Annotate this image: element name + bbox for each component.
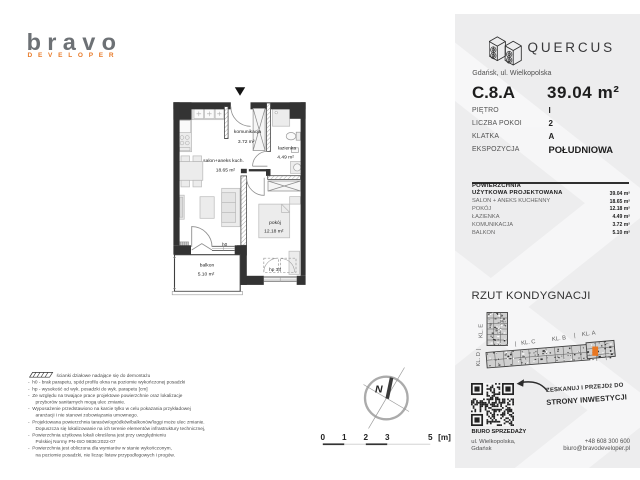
svg-text:| KL. A: | KL. A: [574, 330, 597, 339]
svg-text:KL. E: KL. E: [479, 324, 485, 338]
svg-text:- h0 - brak parapetu, spód pr: - h0 - brak parapetu, spód profilu okna …: [28, 380, 185, 386]
svg-text:- Projektowana powierzchnia t: - Projektowana powierzchnia tarasów/ogró…: [28, 419, 205, 425]
svg-text:5.10 m²: 5.10 m²: [198, 272, 215, 278]
svg-text:3.72 m²: 3.72 m²: [238, 139, 255, 145]
svg-text:- Wyposażenie przedstawiono n: - Wyposażenie przedstawiono na karcie ty…: [28, 406, 191, 412]
svg-text:2: 2: [364, 433, 369, 442]
svg-text:przyborów sanitarnych mogą ule: przyborów sanitarnych mogą ulec zmianie.: [36, 400, 126, 406]
svg-text:- hp - wysokość od wyk. posad: - hp - wysokość od wyk. posadzki do wyk.…: [28, 386, 148, 392]
svg-text:na poziomie posadzki, nie licz: na poziomie posadzki, nie licząc listew …: [36, 452, 175, 458]
svg-text:12.18 m²: 12.18 m²: [264, 228, 284, 234]
svg-text:N: N: [375, 384, 383, 396]
svg-text:0: 0: [321, 433, 326, 442]
svg-text:balkon: balkon: [200, 262, 215, 268]
svg-text:| KL. C: | KL. C: [515, 339, 536, 347]
svg-text:hp 33: hp 33: [269, 267, 281, 272]
svg-text:komunikacja: komunikacja: [234, 129, 261, 135]
svg-text:[m]: [m]: [438, 433, 451, 442]
svg-text:KL. B: KL. B: [552, 335, 567, 343]
svg-text:3: 3: [385, 433, 390, 442]
svg-text:pokój: pokój: [269, 220, 281, 226]
svg-text:Dopuszcza się lokalizowanie na: Dopuszcza się lokalizowanie na ich teren…: [36, 426, 206, 432]
svg-text:1: 1: [342, 433, 347, 442]
svg-text:aranżacji i nie stanowi zobowi: aranżacji i nie stanowi zobowiązania umo…: [36, 413, 138, 419]
svg-text:- Powierzchnia użytkowa lokal: - Powierzchnia użytkowa lokali określona…: [28, 433, 166, 439]
svg-text:h0: h0: [222, 242, 228, 247]
svg-text:5: 5: [428, 433, 433, 442]
svg-text:salon+aneks kuch.: salon+aneks kuch.: [203, 158, 244, 164]
svg-text:18.65 m²: 18.65 m²: [216, 167, 236, 173]
svg-text:Polskiej Normy PN-ISO 9836:202: Polskiej Normy PN-ISO 9836:2022-07: [36, 439, 116, 445]
svg-text:ścianki działowe nadające się: ścianki działowe nadające się do demonta…: [57, 373, 151, 379]
svg-text:KL. D |: KL. D |: [476, 349, 482, 367]
svg-text:4.49 m²: 4.49 m²: [277, 155, 294, 161]
svg-text:- Ze względu na trwające prac: - Ze względu na trwające prace projektow…: [28, 393, 183, 399]
svg-text:łazienka: łazienka: [278, 145, 296, 151]
svg-text:- Powierzchnia jest obliczona: - Powierzchnia jest obliczona dla wymiar…: [28, 446, 172, 452]
